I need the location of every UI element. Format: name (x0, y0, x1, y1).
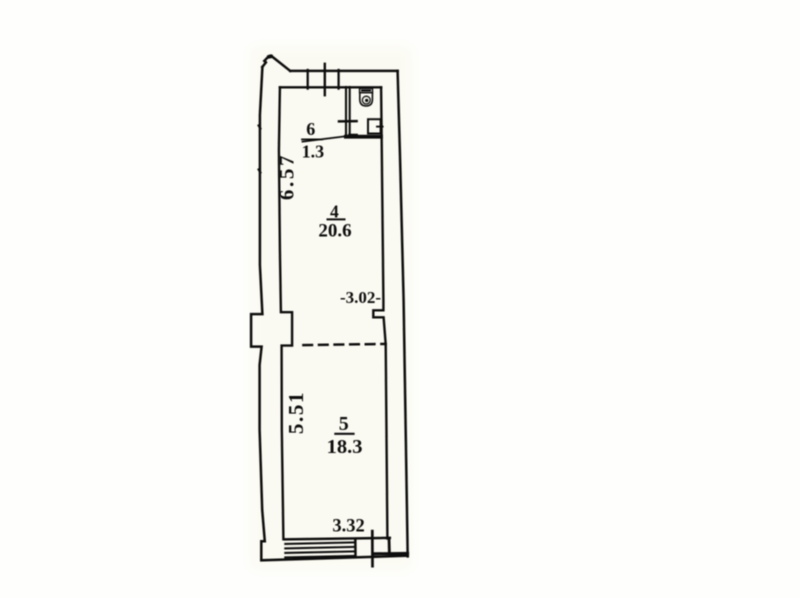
svg-text:5: 5 (339, 413, 349, 435)
svg-text:18.3: 18.3 (327, 436, 363, 458)
svg-text:6.57: 6.57 (275, 153, 299, 200)
svg-text:1.3: 1.3 (302, 142, 325, 162)
svg-text:4: 4 (330, 202, 339, 222)
svg-text:6: 6 (306, 119, 315, 139)
svg-text:20.6: 20.6 (318, 220, 351, 241)
svg-text:-3.02-: -3.02- (340, 288, 381, 307)
svg-text:3.32: 3.32 (332, 516, 364, 536)
svg-text:5.51: 5.51 (284, 391, 308, 434)
